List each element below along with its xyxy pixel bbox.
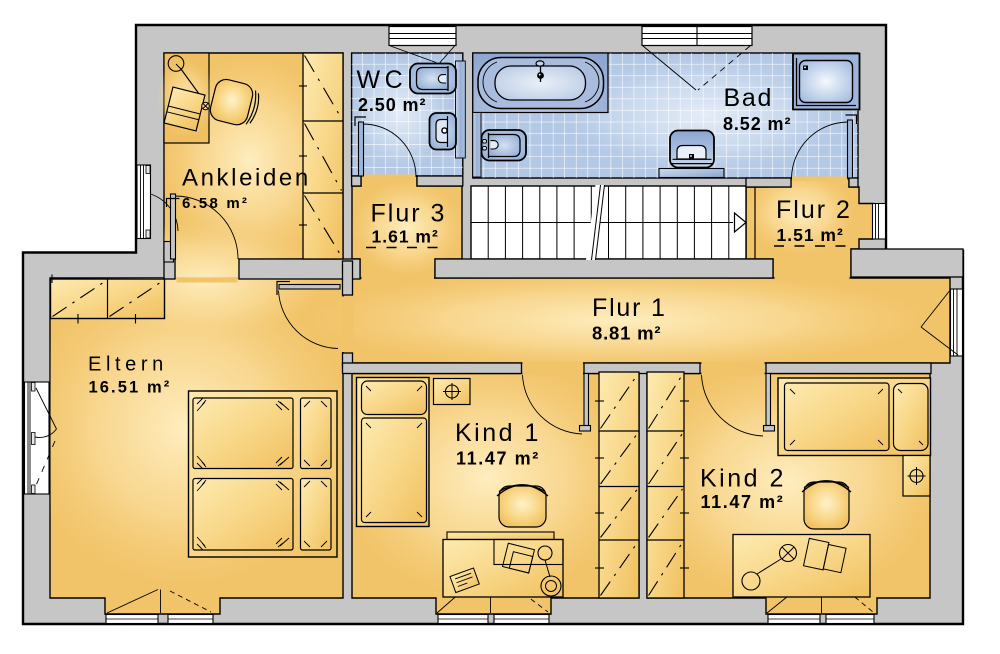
svg-text:8.81 m²: 8.81 m² (592, 323, 661, 344)
svg-text:Bad: Bad (724, 84, 774, 112)
svg-text:11.47 m²: 11.47 m² (701, 492, 785, 512)
svg-text:1.51 m²: 1.51 m² (777, 225, 844, 245)
svg-text:8.52 m²: 8.52 m² (723, 114, 791, 134)
svg-text:Flur 2: Flur 2 (776, 196, 852, 224)
svg-text:Kind 2: Kind 2 (700, 465, 786, 493)
svg-text:Kind 1: Kind 1 (455, 419, 541, 447)
svg-text:WC: WC (357, 66, 408, 94)
svg-text:Flur 1: Flur 1 (592, 294, 667, 322)
svg-text:2.50 m²: 2.50 m² (358, 95, 426, 115)
svg-text:Ankleiden: Ankleiden (182, 165, 311, 192)
svg-text:1.61 m²: 1.61 m² (372, 227, 439, 247)
svg-text:16.51 m²: 16.51 m² (89, 379, 172, 397)
svg-text:6.58 m²: 6.58 m² (182, 195, 249, 212)
svg-text:11.47 m²: 11.47 m² (456, 449, 540, 469)
svg-text:Flur 3: Flur 3 (371, 200, 447, 228)
svg-text:Eltern: Eltern (88, 354, 168, 376)
